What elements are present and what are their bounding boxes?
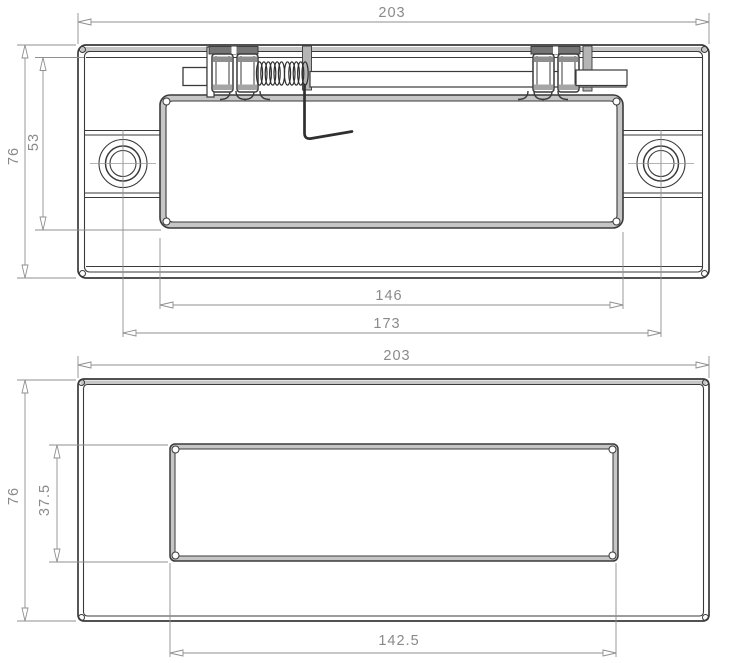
dim-label-top-overall-height: 76 bbox=[7, 144, 22, 168]
dim-label-top-inner-height: 53 bbox=[27, 130, 42, 154]
dim-label-bottom-cutout-width: 142.5 bbox=[375, 634, 422, 649]
dim-label-top-overall-width: 203 bbox=[375, 6, 408, 21]
dim-label-top-latch-width: 146 bbox=[372, 289, 405, 304]
top-view bbox=[17, 13, 709, 337]
bottom-view bbox=[17, 356, 709, 657]
dim-label-bottom-cutout-height: 37.5 bbox=[38, 481, 53, 519]
dim-label-top-screw-spacing: 173 bbox=[370, 317, 403, 332]
technical-drawing-page: 203 76 53 146 173 203 76 37.5 142.5 bbox=[0, 0, 733, 663]
technical-drawing-canvas bbox=[0, 0, 733, 663]
faceplate-cutout bbox=[170, 444, 618, 561]
dim-label-bottom-overall-height: 76 bbox=[7, 484, 22, 508]
latch-keeper-plate bbox=[160, 95, 623, 228]
dim-label-bottom-overall-width: 203 bbox=[380, 349, 413, 364]
rod-end-cap bbox=[183, 68, 207, 86]
dim-top-overall-height bbox=[17, 45, 76, 278]
